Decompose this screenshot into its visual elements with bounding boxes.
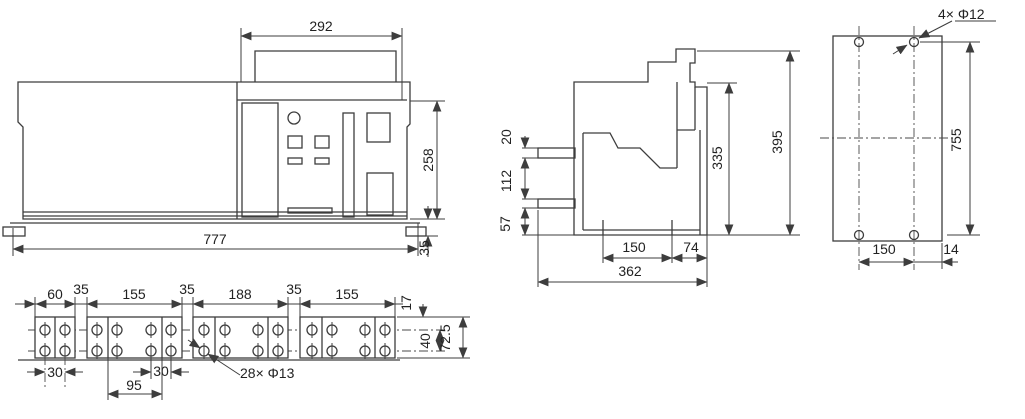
rear-mounting-plate xyxy=(833,36,942,241)
dim-terminal-bar4-width: 155 xyxy=(335,286,359,302)
dim-front-overall-width: 777 xyxy=(203,231,227,247)
dim-rear-edge-offset: 14 xyxy=(943,241,959,257)
dim-terminal-top-offset: 17 xyxy=(398,295,414,311)
front-body-outline xyxy=(18,82,410,219)
terminal-bars xyxy=(35,317,395,359)
terminal-bar xyxy=(193,317,288,358)
side-body-outline xyxy=(574,49,707,235)
dim-front-base-height: 35 xyxy=(416,240,432,256)
technical-drawing-canvas: 292 258 777 35 xyxy=(0,0,1025,419)
dim-front-panel-width: 292 xyxy=(309,18,333,34)
dim-side-mount-spacing: 150 xyxy=(622,239,646,255)
callout-terminal-holes: 28× Φ13 xyxy=(240,365,295,381)
side-dimensions: 20 112 57 335 395 150 74 362 xyxy=(497,51,800,287)
dim-terminal-bar2-width: 155 xyxy=(122,286,146,302)
terminal-bar xyxy=(300,317,395,358)
dim-terminal-hole-pitch-1: 30 xyxy=(47,364,63,380)
front-vertical-slot xyxy=(343,113,354,217)
terminal-bar xyxy=(87,317,182,358)
dim-side-bottom-offset: 57 xyxy=(497,216,513,232)
front-rating-plate xyxy=(367,173,393,215)
dim-side-terminal-spacing: 112 xyxy=(498,170,514,193)
dim-rear-hole-hspacing: 150 xyxy=(872,241,896,257)
dim-side-overall-height: 395 xyxy=(769,130,785,154)
front-indicator-right xyxy=(315,158,329,164)
callout-rear-mount-holes: 4× Φ12 xyxy=(938,6,985,22)
side-terminal-bar-lower xyxy=(538,199,575,208)
dim-rear-hole-vspacing: 755 xyxy=(948,128,964,152)
front-view: 292 258 777 35 xyxy=(3,18,445,257)
front-indicator-left xyxy=(288,158,302,164)
front-counter-window xyxy=(367,113,390,142)
rear-view: 4× Φ12 755 150 14 xyxy=(820,6,996,270)
dim-side-body-height: 335 xyxy=(709,146,725,170)
front-foot-left xyxy=(3,227,25,236)
front-pushbutton-left xyxy=(288,136,302,148)
dim-terminal-strip-height: 72.5 xyxy=(437,324,453,351)
dim-side-overall-depth: 362 xyxy=(618,263,642,279)
front-foot-right xyxy=(406,227,426,236)
front-label-window xyxy=(242,103,278,217)
side-mechanism-profile xyxy=(583,133,677,168)
dim-terminal-bar1-width: 60 xyxy=(47,286,63,302)
rear-dimensions: 4× Φ12 755 150 14 xyxy=(859,6,996,269)
dim-terminal-gap2: 35 xyxy=(179,281,195,297)
front-dimensions: 292 258 777 35 xyxy=(13,18,445,257)
dim-side-rear-offset: 74 xyxy=(683,239,699,255)
front-reset-button xyxy=(288,112,300,124)
side-terminal-bar-upper xyxy=(538,148,575,158)
dim-side-terminal-thickness: 20 xyxy=(498,129,514,145)
terminal-view: 60 35 155 35 188 35 155 17 40 72.5 30 xyxy=(15,281,470,400)
dim-terminal-row-spacing: 40 xyxy=(417,333,433,349)
dim-front-panel-height: 258 xyxy=(420,148,436,172)
breaker-outline-drawing: 292 258 777 35 xyxy=(0,0,1025,419)
side-view: 20 112 57 335 395 150 74 362 xyxy=(497,49,800,287)
front-arc-chamber-cover xyxy=(255,51,396,82)
front-pushbutton-right xyxy=(315,136,329,148)
dim-terminal-gap3: 35 xyxy=(286,281,302,297)
dim-terminal-hole-pitch-2: 30 xyxy=(153,363,169,379)
dim-terminal-bar3-width: 188 xyxy=(228,286,252,302)
dim-terminal-hole-pitch-wide: 95 xyxy=(126,377,142,393)
dim-terminal-gap1: 35 xyxy=(73,281,89,297)
